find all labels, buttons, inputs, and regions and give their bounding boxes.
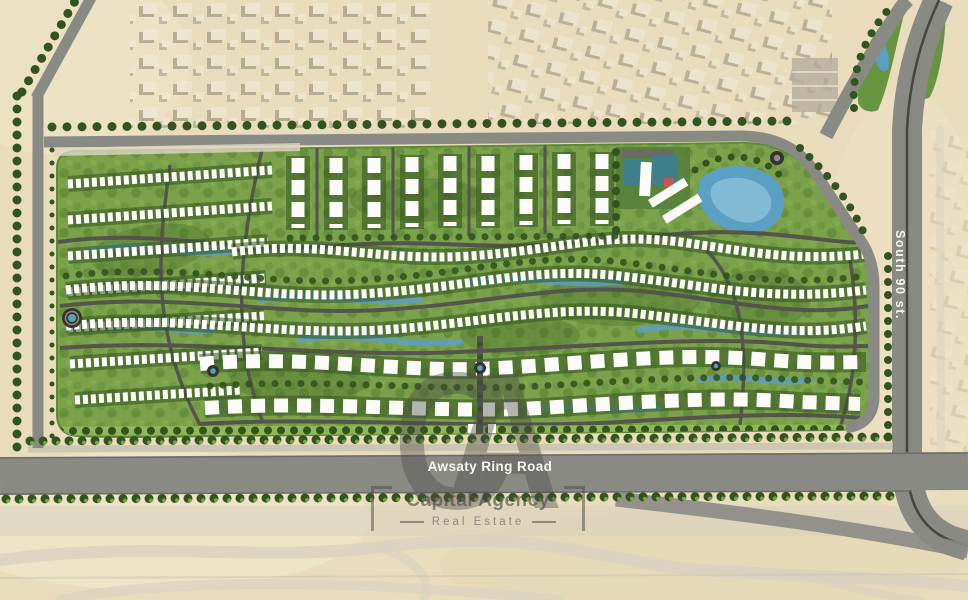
master-plan-map: CA Capital Agency Real Estate Awsaty Rin…: [0, 0, 968, 600]
site-plan-graphic: [0, 0, 968, 600]
development-site: [50, 140, 880, 452]
